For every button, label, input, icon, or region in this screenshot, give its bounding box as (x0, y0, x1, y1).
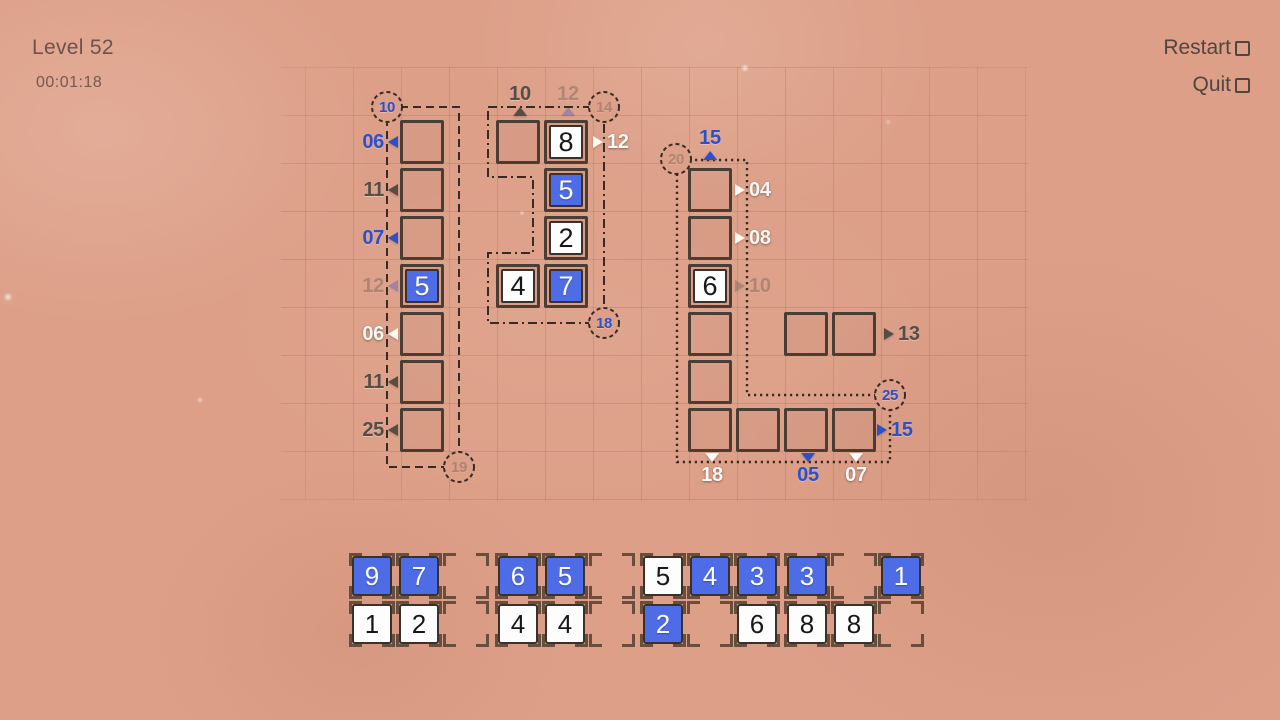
quit-button[interactable]: Quit (1192, 73, 1250, 97)
tray-tile[interactable]: 7 (399, 556, 439, 596)
clue-value: 18 (701, 465, 723, 485)
tray-slot[interactable]: 5 (542, 553, 588, 599)
arrow-left-icon (388, 328, 398, 340)
tray-slot[interactable]: 4 (687, 553, 733, 599)
tray-slot[interactable] (589, 601, 635, 647)
board-cell[interactable] (400, 408, 444, 452)
placed-tile[interactable]: 7 (549, 269, 583, 303)
tray-slot[interactable]: 8 (784, 601, 830, 647)
tray-tile[interactable]: 6 (737, 604, 777, 644)
tray-tile[interactable]: 4 (690, 556, 730, 596)
column-clue: 18 (701, 453, 723, 485)
clue-value: 15 (699, 128, 721, 148)
tray-tile[interactable]: 6 (498, 556, 538, 596)
tray-slot[interactable]: 1 (349, 601, 395, 647)
board-cell[interactable] (688, 360, 732, 404)
placed-tile[interactable]: 5 (549, 173, 583, 207)
arrow-down-icon (849, 453, 863, 462)
tray-tile[interactable]: 4 (498, 604, 538, 644)
tray-tile[interactable]: 9 (352, 556, 392, 596)
board-cell[interactable] (832, 312, 876, 356)
column-clue: 15 (699, 128, 721, 160)
tray-tile[interactable]: 3 (737, 556, 777, 596)
arrow-right-icon (593, 136, 603, 148)
clue-value: 11 (363, 372, 384, 392)
column-clue: 12 (557, 84, 579, 116)
column-clue: 10 (509, 84, 531, 116)
arrow-right-icon (877, 424, 887, 436)
clue-value: 08 (749, 228, 771, 248)
restart-button[interactable]: Restart (1163, 36, 1250, 60)
board-cell[interactable]: 5 (400, 264, 444, 308)
tray-slot[interactable] (589, 553, 635, 599)
arrow-left-icon (388, 184, 398, 196)
clue-value: 11 (363, 180, 384, 200)
arrow-up-icon (703, 151, 717, 160)
placed-tile[interactable]: 8 (549, 125, 583, 159)
row-clue: 11 (363, 372, 398, 392)
board-cell[interactable] (400, 120, 444, 164)
game-screen: { "header": { "level_label": "Level 52",… (0, 0, 1280, 720)
clue-value: 06 (362, 324, 384, 344)
tray-slot[interactable]: 2 (640, 601, 686, 647)
column-clue: 05 (797, 453, 819, 485)
clue-value: 04 (749, 180, 771, 200)
region-total: 19 (442, 450, 476, 484)
board-cell[interactable]: 6 (688, 264, 732, 308)
tray-slot[interactable] (831, 553, 877, 599)
placed-tile[interactable]: 6 (693, 269, 727, 303)
tray-slot[interactable]: 2 (396, 601, 442, 647)
arrow-down-icon (801, 453, 815, 462)
clue-value: 13 (898, 324, 920, 344)
row-clue: 07 (362, 228, 398, 248)
board-cell[interactable] (736, 408, 780, 452)
tray-slot[interactable]: 5 (640, 553, 686, 599)
row-clue: 04 (735, 180, 771, 200)
tray-slot[interactable]: 4 (542, 601, 588, 647)
tray-slot[interactable] (878, 601, 924, 647)
board-cell[interactable] (400, 168, 444, 212)
region-total: 10 (370, 90, 404, 124)
arrow-right-icon (735, 280, 745, 292)
tray-tile[interactable]: 3 (787, 556, 827, 596)
row-clue: 12 (593, 132, 629, 152)
tray-tile[interactable]: 2 (399, 604, 439, 644)
arrow-down-icon (705, 453, 719, 462)
tray-slot[interactable]: 6 (495, 553, 541, 599)
arrow-up-icon (513, 107, 527, 116)
board-cell[interactable] (832, 408, 876, 452)
arrow-left-icon (388, 136, 398, 148)
arrow-right-icon (735, 232, 745, 244)
tray-slot[interactable]: 4 (495, 601, 541, 647)
clue-value: 15 (891, 420, 913, 440)
tray-tile[interactable]: 1 (352, 604, 392, 644)
arrow-right-icon (735, 184, 745, 196)
board-cell[interactable] (400, 360, 444, 404)
row-clue: 10 (735, 276, 771, 296)
board-cell[interactable] (784, 408, 828, 452)
clue-value: 10 (509, 84, 531, 104)
tray-slot[interactable] (687, 601, 733, 647)
tray-slot[interactable]: 9 (349, 553, 395, 599)
board-cell[interactable] (688, 312, 732, 356)
board-cell[interactable] (784, 312, 828, 356)
clue-value: 12 (557, 84, 579, 104)
tray-tile[interactable]: 5 (643, 556, 683, 596)
tray-slot[interactable]: 7 (396, 553, 442, 599)
tray-slot[interactable] (443, 601, 489, 647)
level-label: Level 52 (32, 36, 114, 60)
clue-value: 25 (362, 420, 384, 440)
tray-tile[interactable]: 2 (643, 604, 683, 644)
board-cell[interactable]: 4 (496, 264, 540, 308)
board-cell[interactable]: 8 (544, 120, 588, 164)
board-cell[interactable] (688, 216, 732, 260)
clue-value: 06 (362, 132, 384, 152)
quit-key-icon (1235, 78, 1250, 93)
restart-key-icon (1235, 41, 1250, 56)
timer: 00:01:18 (36, 74, 102, 92)
board-cell[interactable]: 2 (544, 216, 588, 260)
placed-tile[interactable]: 4 (501, 269, 535, 303)
tray-tile[interactable]: 5 (545, 556, 585, 596)
region-total: 18 (587, 306, 621, 340)
clue-value: 12 (607, 132, 629, 152)
row-clue: 06 (362, 132, 398, 152)
column-clue: 07 (845, 453, 867, 485)
quit-label: Quit (1192, 73, 1231, 97)
board-cell[interactable] (496, 120, 540, 164)
row-clue: 12 (362, 276, 398, 296)
arrow-right-icon (884, 328, 894, 340)
clue-value: 12 (362, 276, 384, 296)
row-clue: 11 (363, 180, 398, 200)
tray-slot[interactable]: 8 (831, 601, 877, 647)
tray-tile[interactable]: 1 (881, 556, 921, 596)
placed-tile[interactable]: 5 (405, 269, 439, 303)
row-clue: 08 (735, 228, 771, 248)
board-cell[interactable] (400, 312, 444, 356)
row-clue: 25 (362, 420, 398, 440)
clue-value: 07 (362, 228, 384, 248)
region-total: 14 (587, 90, 621, 124)
arrow-left-icon (388, 232, 398, 244)
row-clue: 15 (877, 420, 913, 440)
board-cell[interactable]: 7 (544, 264, 588, 308)
tray-slot[interactable]: 1 (878, 553, 924, 599)
arrow-up-icon (561, 107, 575, 116)
arrow-left-icon (388, 280, 398, 292)
tray-slot[interactable]: 3 (734, 553, 780, 599)
board-cell[interactable] (688, 408, 732, 452)
tray-tile[interactable]: 8 (834, 604, 874, 644)
tray-slot[interactable] (443, 553, 489, 599)
tray-tile[interactable]: 4 (545, 604, 585, 644)
tray-tile[interactable]: 8 (787, 604, 827, 644)
row-clue: 13 (884, 324, 920, 344)
arrow-left-icon (388, 424, 398, 436)
restart-label: Restart (1163, 36, 1231, 60)
board-cell[interactable] (688, 168, 732, 212)
region-total: 25 (873, 378, 907, 412)
arrow-left-icon (388, 376, 398, 388)
row-clue: 06 (362, 324, 398, 344)
tray-slot[interactable]: 3 (784, 553, 830, 599)
clue-value: 07 (845, 465, 867, 485)
tray-slot[interactable]: 6 (734, 601, 780, 647)
clue-value: 05 (797, 465, 819, 485)
placed-tile[interactable]: 2 (549, 221, 583, 255)
board-cell[interactable]: 5 (544, 168, 588, 212)
board-cell[interactable] (400, 216, 444, 260)
clue-value: 10 (749, 276, 771, 296)
